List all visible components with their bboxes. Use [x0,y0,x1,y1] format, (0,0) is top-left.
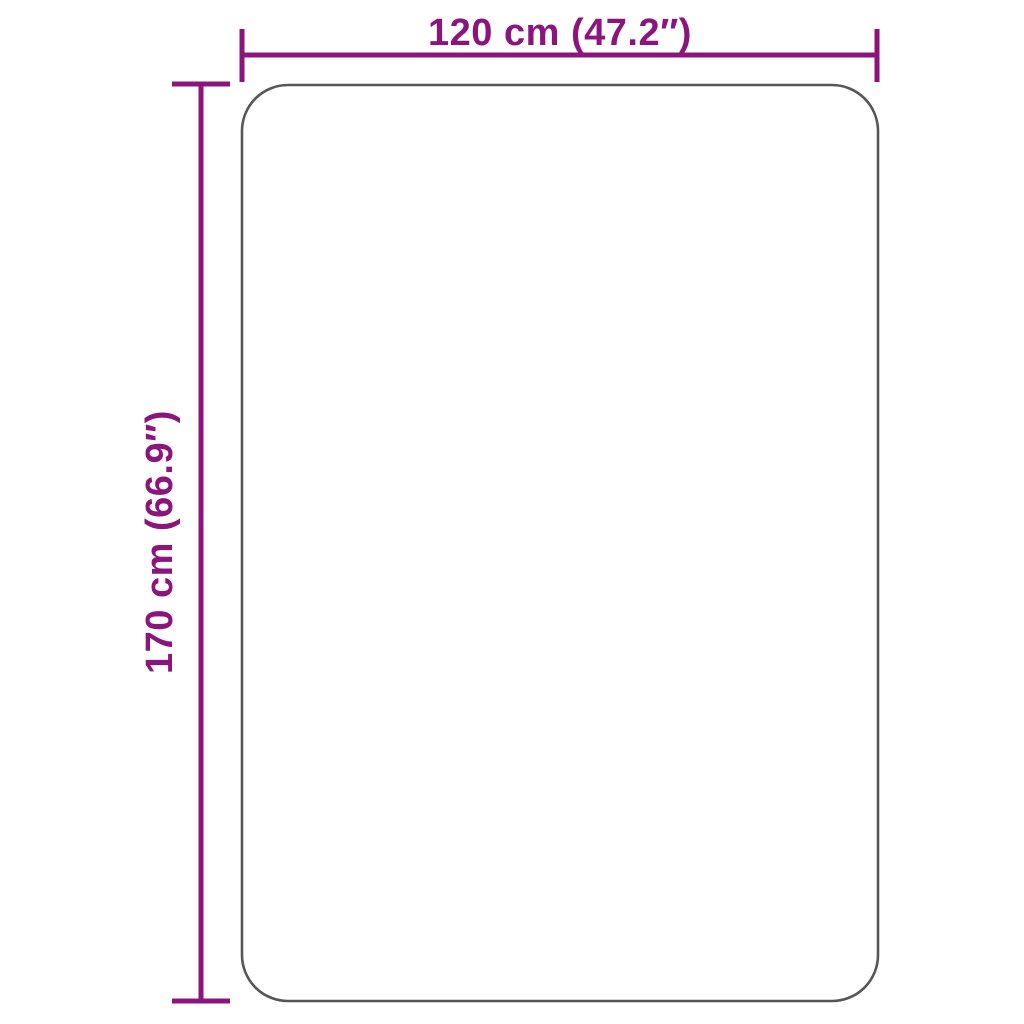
height-dimension-label: 170 cm (66.9″) [139,410,181,674]
width-dimension: 120 cm (47.2″) [242,12,877,82]
rug-outline [242,85,878,1001]
height-dimension: 170 cm (66.9″) [139,84,230,1001]
dimension-diagram: 120 cm (47.2″) 170 cm (66.9″) [0,0,1024,1024]
width-dimension-label: 120 cm (47.2″) [428,12,692,54]
dimension-diagram-canvas: 120 cm (47.2″) 170 cm (66.9″) [0,0,1024,1024]
